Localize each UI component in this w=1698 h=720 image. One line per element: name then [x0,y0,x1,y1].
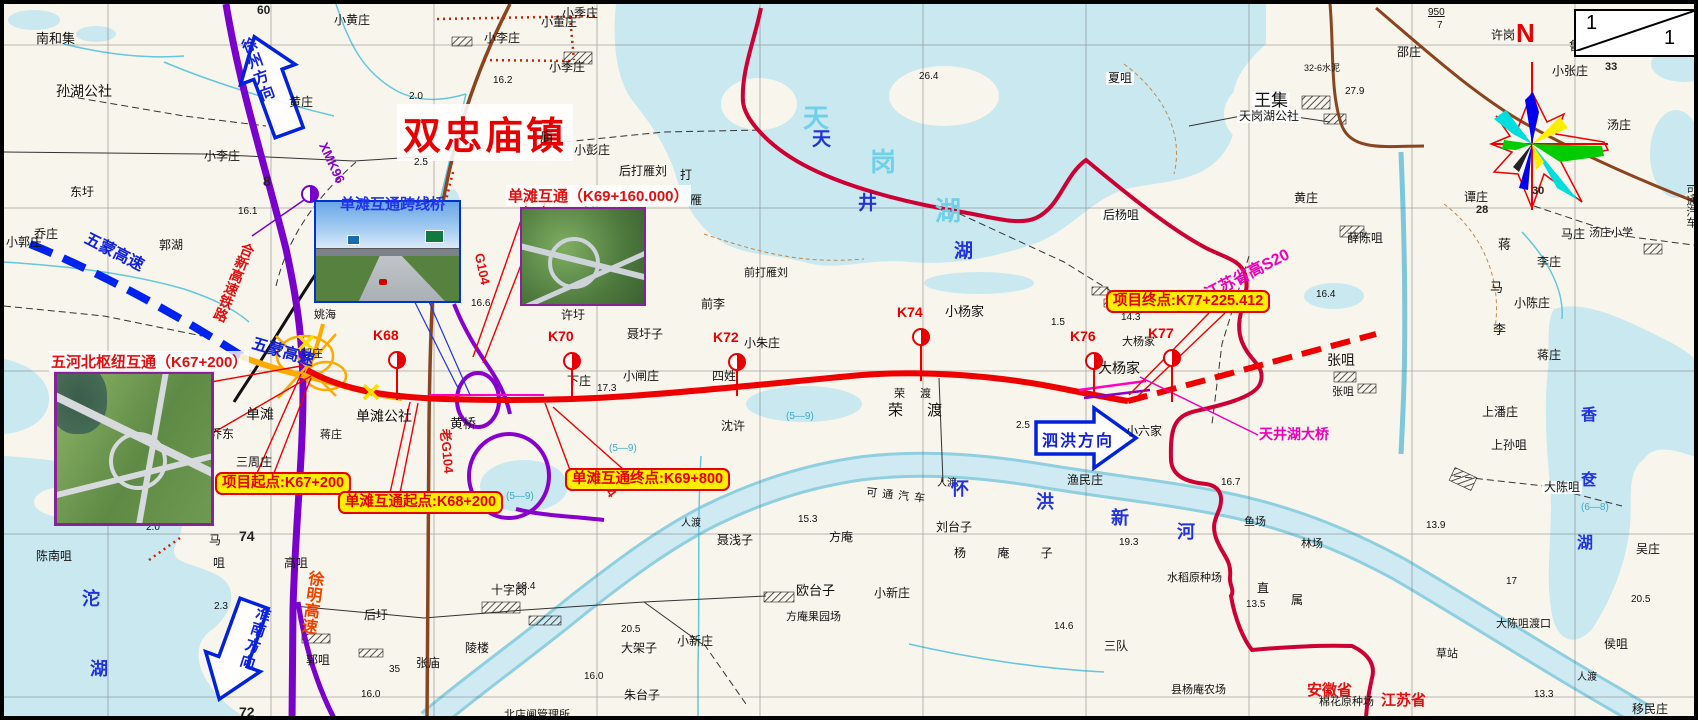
arrow-label-sihong: 泗洪方向 [1042,427,1114,451]
photo-red-car [379,279,387,285]
station-stem [736,370,738,396]
tianjinghu-bridge-leader [1140,377,1258,435]
photo-dantan-interchange-aerial [520,207,646,306]
station-circle [1163,349,1181,367]
callout-project-start: 项目起点:K67+200 [215,472,351,495]
station-stem [920,345,922,381]
photo-loop-ramp [109,432,167,490]
label-wuhebei-interchange: 五河北枢纽互通（K67+200） [49,351,249,372]
callout-dantan-end: 单滩互通终点:K69+800 [565,468,730,491]
wumeng-expressway-line [30,244,242,356]
station-circle [728,353,746,371]
callout-project-end: 项目终点:K77+225.412 [1106,290,1270,313]
station-label: K70 [548,328,574,344]
station-circle [563,352,581,370]
photo-overpass [316,248,459,256]
station-circle [912,328,930,346]
station-label: K72 [713,329,739,345]
station-label: K74 [897,304,923,320]
station-stem [1093,369,1095,397]
scale-corner-box: 1 1 [1574,9,1698,57]
project-alignment-map: 单滩互通跨线桥 单滩互通（K69+160.000） 五河北枢纽互通（K67+20… [0,0,1698,720]
label-dantan-overpass: 单滩互通跨线桥 [340,193,445,214]
callout-dantan-start: 单滩互通起点:K68+200 [338,491,503,514]
photo-sign [425,230,444,243]
wind-rose [1491,62,1608,210]
photo-wuhebei-interchange-aerial [54,371,214,526]
scale-number-top: 1 [1586,12,1597,35]
xmk96-marker [252,186,318,236]
station-label: K68 [373,327,399,343]
station-label: K76 [1070,328,1096,344]
station-stem [571,369,573,401]
station-label: K77 [1148,325,1174,341]
station-circle [1085,352,1103,370]
station-circle [388,351,406,369]
photo-sign-2 [347,235,360,245]
photo-dantan-overpass [314,200,461,303]
station-stem [1171,366,1173,402]
compass-north-label: N [1516,18,1535,49]
town-title: 双忠庙镇 [397,104,573,161]
station-stem [396,368,398,400]
photo-loop-ramp [548,237,600,289]
scale-number-bottom: 1 [1664,27,1675,50]
label-dantan-interchange: 单滩互通（K69+160.000） [506,185,691,206]
